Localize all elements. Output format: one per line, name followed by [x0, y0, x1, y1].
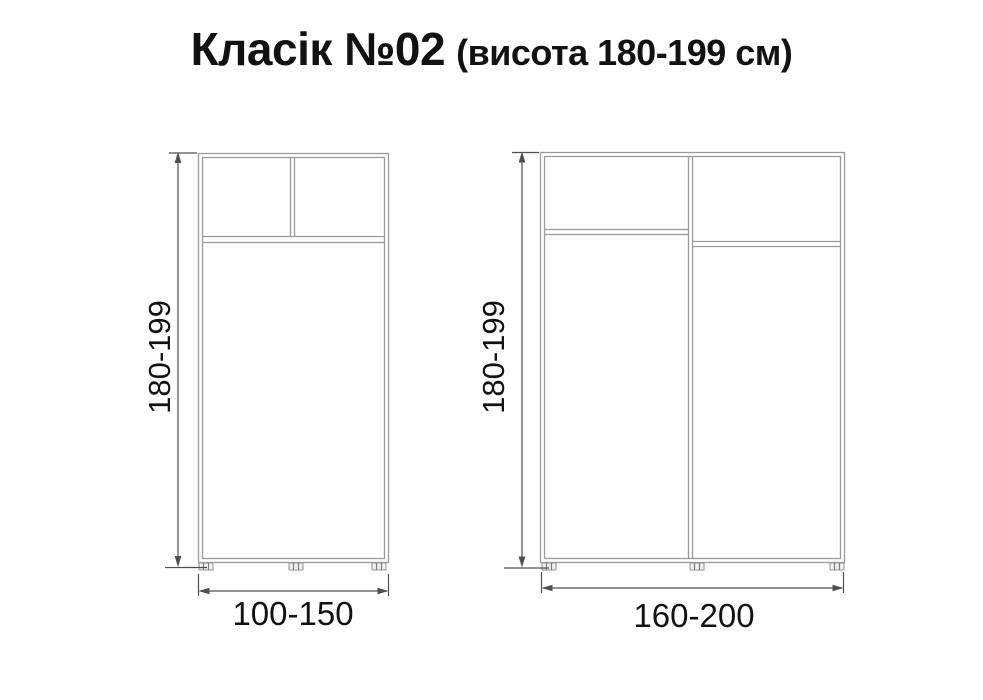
right-width-dimension-label: 160-200 [633, 597, 754, 635]
foot-icon [199, 563, 213, 570]
foot-icon [690, 563, 704, 570]
right-width-dimension [542, 572, 844, 593]
foot-icon [830, 563, 844, 570]
left-wardrobe-drawing [199, 154, 389, 571]
right-wardrobe-drawing [541, 153, 845, 571]
foot-icon [372, 563, 386, 570]
left-width-dimension [199, 574, 389, 596]
foot-icon [542, 563, 556, 570]
foot-icon [289, 563, 303, 570]
left-height-dimension-label: 180-199 [142, 300, 178, 414]
left-width-dimension-label: 100-150 [232, 595, 353, 633]
right-height-dimension-label: 180-199 [476, 300, 512, 414]
